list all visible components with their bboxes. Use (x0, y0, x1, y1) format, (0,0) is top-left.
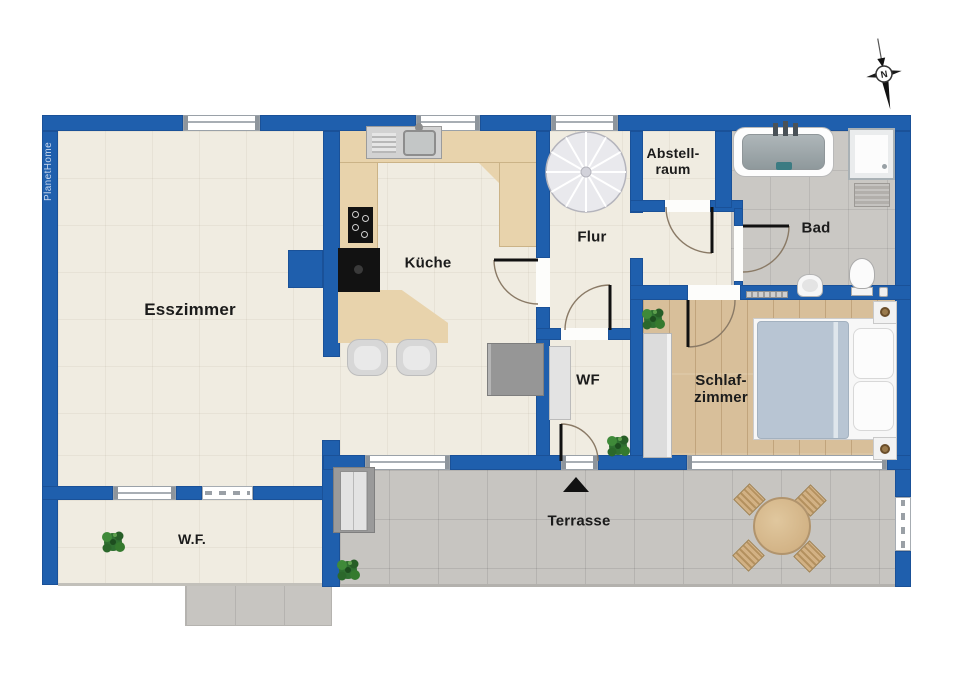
room-label-bad: Bad (802, 219, 831, 236)
window (687, 455, 887, 470)
toilet (849, 258, 875, 296)
window (183, 115, 260, 131)
wall-segment (536, 328, 561, 340)
room-label-wf: WF (576, 371, 600, 388)
faucet-icon (415, 123, 423, 132)
bath-mat (854, 183, 890, 207)
room-label-schlafzimmer: Schlaf- zimmer (694, 372, 748, 407)
potted-plant (638, 304, 668, 334)
floor-esszimmer-lower (58, 455, 323, 486)
nightstand (873, 437, 897, 460)
sink-drainboard (372, 133, 396, 153)
door-bedroom (687, 299, 738, 349)
towel-radiator (746, 291, 788, 298)
kitchen-counter (499, 163, 536, 247)
faucet-icon (793, 123, 798, 136)
room-label-terrasse: Terrasse (547, 512, 610, 529)
faucet-icon (783, 121, 788, 136)
north-arrow: N (852, 32, 918, 114)
window (551, 115, 618, 131)
floor-edge (58, 583, 322, 586)
room-label-abstellraum: Abstell- raum (647, 145, 700, 177)
room-label-esszimmer: Esszimmer (144, 300, 236, 320)
kitchen-sink (366, 126, 442, 159)
wall-segment (176, 486, 202, 500)
tub-overflow (776, 162, 792, 170)
door-bathroom (742, 225, 792, 275)
entrance-arrow (563, 477, 589, 492)
wall-segment (630, 285, 688, 300)
oven (338, 248, 380, 292)
room-label-wf-area: W.F. (178, 531, 206, 547)
bed (753, 318, 897, 440)
floor-edge (340, 584, 895, 587)
lamp-icon (880, 444, 890, 454)
drain-icon (882, 164, 887, 169)
potted-plant (98, 527, 128, 557)
wall-segment (715, 131, 732, 208)
window (202, 486, 253, 500)
wall-segment (450, 455, 561, 470)
shower (848, 128, 895, 180)
faucet-icon (773, 123, 778, 136)
toilet-bowl (849, 258, 875, 289)
bathtub (733, 127, 834, 177)
wall-segment (42, 486, 113, 500)
wall-segment (895, 551, 911, 587)
watermark: PlanetHome (43, 117, 54, 201)
wall-segment (323, 131, 340, 357)
door-wf-hall (564, 284, 612, 332)
door-wf-terrace (559, 422, 601, 464)
door-storage-room (663, 206, 715, 254)
wf-shelf (549, 346, 571, 420)
cooktop (348, 207, 373, 243)
lamp-icon (880, 307, 890, 317)
terrace-table (753, 497, 811, 555)
wall-pillar (288, 250, 323, 288)
door-opening (688, 285, 740, 300)
door-kitchen (492, 257, 540, 309)
storage-cabinet (333, 467, 375, 533)
pillow (853, 381, 894, 431)
floor-plan: Esszimmer Küche Flur Abstell- raum Bad W… (0, 0, 961, 680)
bar-stool (347, 339, 388, 376)
pillow (853, 328, 894, 379)
terrace-gate (895, 497, 911, 551)
nightstand (873, 301, 897, 324)
wall-segment (480, 115, 551, 131)
bathroom-sink (797, 274, 823, 297)
bar-stool (396, 339, 437, 376)
wall-segment (42, 115, 183, 131)
wall-segment (895, 131, 911, 497)
window (113, 486, 176, 500)
wall-segment (253, 486, 323, 500)
sink-basin (403, 130, 436, 156)
room-label-kueche: Küche (405, 254, 452, 271)
duvet (757, 321, 849, 439)
wall-segment (630, 200, 665, 212)
toilet-brush (879, 287, 888, 297)
wall-segment (734, 208, 743, 226)
potted-plant (603, 431, 633, 461)
wardrobe (643, 333, 672, 458)
window (365, 455, 450, 470)
room-label-flur: Flur (577, 228, 606, 245)
concrete-step (185, 584, 332, 626)
dining-sideboard (487, 343, 544, 396)
spiral-staircase (544, 130, 628, 214)
potted-plant (333, 555, 363, 585)
